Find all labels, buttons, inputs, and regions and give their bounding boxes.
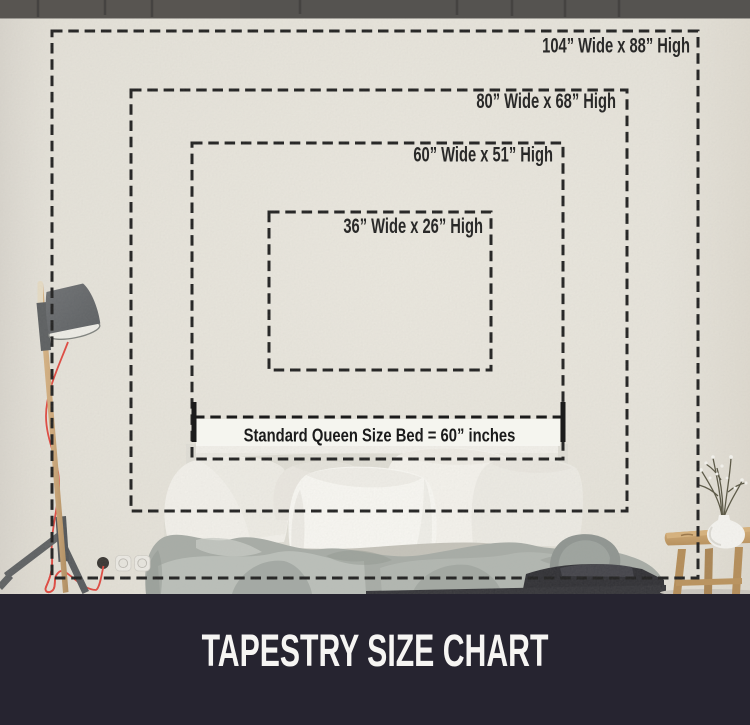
svg-text:Standard Queen Size Bed = 60”: Standard Queen Size Bed = 60” inches	[244, 425, 516, 446]
svg-text:TAPESTRY SIZE CHART: TAPESTRY SIZE CHART	[202, 626, 549, 677]
